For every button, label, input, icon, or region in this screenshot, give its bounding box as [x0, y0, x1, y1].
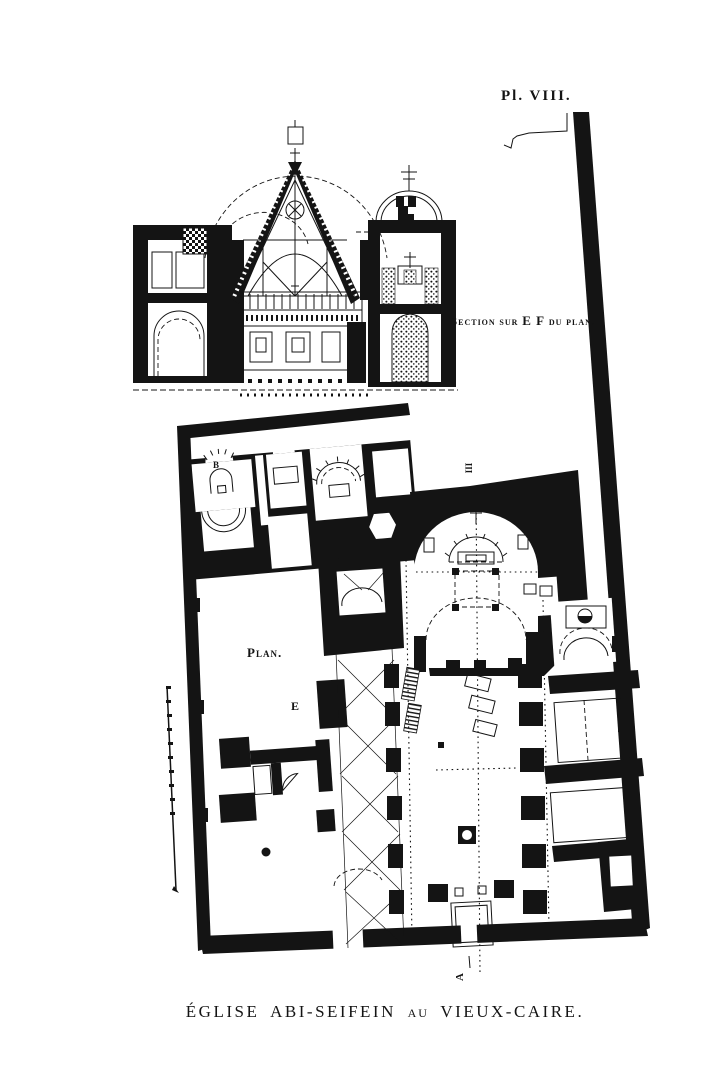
section-drawing [133, 120, 458, 395]
marker-a: A [454, 973, 466, 981]
scale-bar [166, 686, 179, 893]
main-caption-connector: AU [408, 1006, 429, 1020]
plan-drawing [177, 403, 648, 974]
marker-b: B [213, 460, 219, 470]
engraved-plate: Pl. VIII. Section sur E F du plan. Plan.… [0, 0, 720, 1082]
main-caption-part1: ÉGLISE ABI-SEIFEIN [186, 1002, 396, 1021]
section-caption-part2: du plan. [549, 316, 596, 328]
section-caption-part1: Section sur [451, 316, 518, 328]
section-caption-ef: E F [522, 313, 545, 328]
marker-iii: III [463, 463, 473, 474]
section-caption: Section sur E F du plan. [451, 313, 596, 329]
plate-number: Pl. VIII. [501, 88, 572, 105]
main-caption-part2: VIEUX-CAIRE. [440, 1002, 584, 1021]
plate-drawing [0, 0, 720, 1082]
main-caption: ÉGLISE ABI-SEIFEIN AU VIEUX-CAIRE. [165, 1002, 605, 1022]
plan-caption: Plan. [247, 645, 282, 661]
marker-e: E [291, 699, 299, 714]
